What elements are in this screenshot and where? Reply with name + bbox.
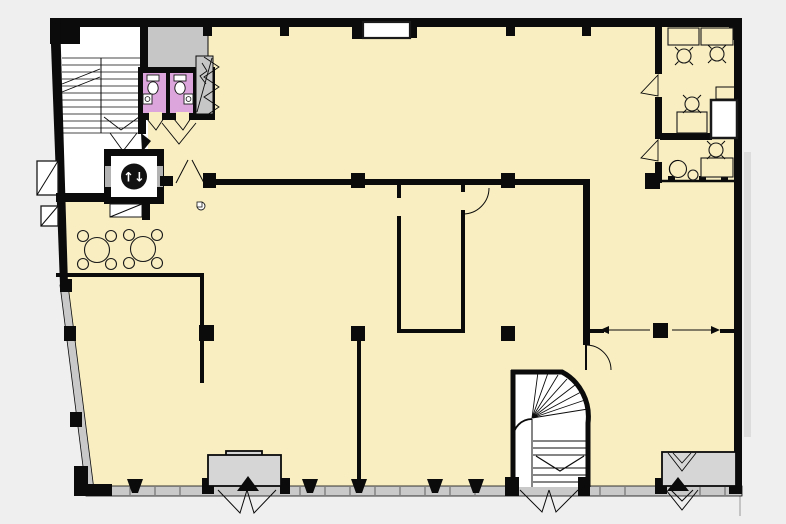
office-chair	[707, 141, 725, 159]
bottom-window-band	[86, 486, 742, 496]
sink-icon	[184, 94, 193, 104]
office-chair	[708, 45, 726, 63]
office-chair	[683, 95, 701, 113]
toilet-icon	[147, 75, 159, 94]
column	[351, 173, 365, 188]
column	[199, 325, 214, 341]
desk	[701, 28, 733, 45]
desk	[668, 28, 699, 45]
closet	[711, 100, 737, 138]
office-chair	[675, 47, 693, 65]
column	[501, 173, 515, 188]
column	[653, 323, 668, 338]
column	[351, 326, 365, 341]
top-window-recess	[363, 22, 410, 38]
right-exterior-hatch	[744, 152, 751, 437]
side-table	[688, 170, 698, 180]
desk	[701, 158, 733, 177]
toilet-icon	[174, 75, 186, 94]
sink-icon	[143, 94, 152, 104]
wc-area	[138, 56, 215, 130]
column	[203, 173, 216, 188]
column	[645, 173, 660, 189]
elevator-arrows-icon: ↑↓	[123, 171, 145, 186]
desk	[677, 112, 707, 133]
column	[501, 326, 515, 341]
floor-plan: ↑↓	[0, 0, 786, 524]
